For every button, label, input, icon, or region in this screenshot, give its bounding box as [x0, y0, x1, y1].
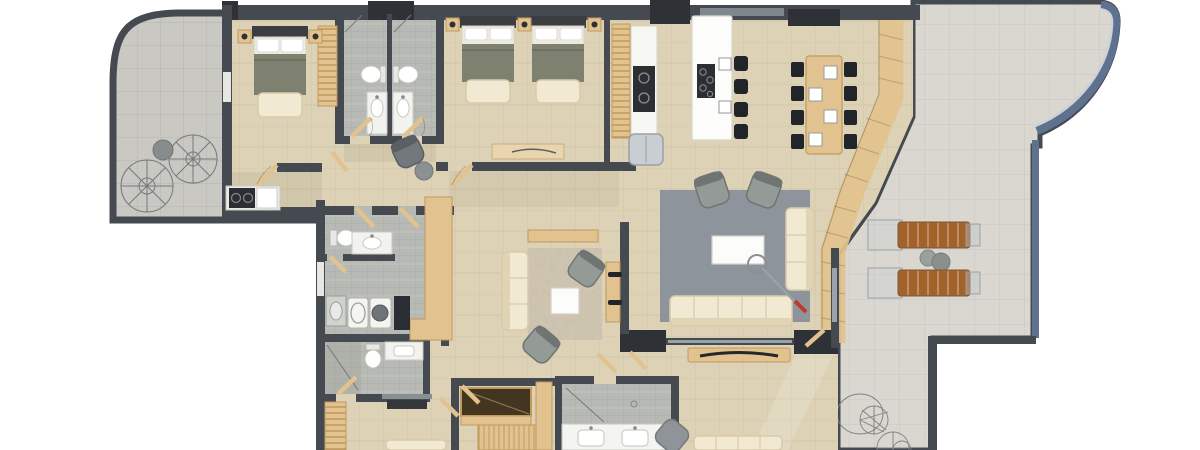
terrace-step-wall-2: [928, 336, 937, 450]
toilet: [361, 66, 386, 83]
floor-plan-image: [0, 0, 1200, 450]
tv-panel: [387, 400, 427, 409]
stair-landing: [461, 416, 531, 425]
single-bed-2: [530, 16, 586, 103]
nightstand-5: [588, 18, 601, 31]
living-room: [660, 170, 814, 326]
vanity-sink: [367, 92, 387, 134]
nightstand-2: [309, 30, 322, 43]
toilet-3: [365, 344, 381, 368]
sofa-west: [502, 252, 528, 330]
kitchenette: [226, 186, 280, 210]
vanity-3: [385, 342, 423, 360]
patio-table: [153, 140, 173, 160]
washer: [348, 298, 368, 328]
tv-console: [688, 348, 790, 362]
corridor-shade-3: [449, 169, 619, 207]
media-sideboard: [606, 262, 622, 322]
toilet-2: [330, 230, 355, 246]
wireframe-chair-1: [121, 160, 173, 212]
bed-3: [386, 440, 446, 450]
island-hob: [697, 64, 715, 98]
tv-shelf: [382, 394, 432, 399]
wireframe-chair-2: [169, 135, 217, 183]
console-table: [528, 230, 598, 242]
balustrade-rail-side: [1032, 140, 1039, 338]
utility-sink: [326, 296, 346, 326]
vanity-2: [352, 232, 392, 254]
single-bed-1: [460, 16, 516, 103]
dark-cabinet: [394, 296, 410, 330]
stair-treads: [478, 425, 536, 450]
stair-wood-wall: [536, 382, 552, 450]
coffee-table-2: [551, 288, 579, 314]
floor-plan-svg: [0, 0, 1200, 450]
pantry-shelf: [612, 24, 630, 138]
nightstand-4: [518, 18, 531, 31]
coffee-table: [712, 236, 764, 264]
double-bed: [252, 26, 308, 117]
sofa-south: [670, 296, 792, 326]
dryer: [370, 298, 391, 328]
cooktop: [633, 66, 655, 112]
toilet: [393, 66, 418, 83]
nightstand-3: [446, 18, 459, 31]
sun-lounger-1: [868, 220, 980, 250]
nightstand-1: [238, 30, 251, 43]
hall-pouf: [415, 162, 433, 180]
wardrobe-2: [325, 402, 346, 450]
fridge: [629, 134, 663, 165]
foot-bench: [258, 93, 302, 117]
desk: [492, 144, 564, 159]
bath-5-shower-floor: [562, 384, 672, 424]
sofa-3: [694, 436, 782, 450]
sun-lounger-2: [868, 268, 980, 298]
sofa-east: [786, 208, 814, 290]
terrace-step-wall: [928, 336, 1036, 344]
